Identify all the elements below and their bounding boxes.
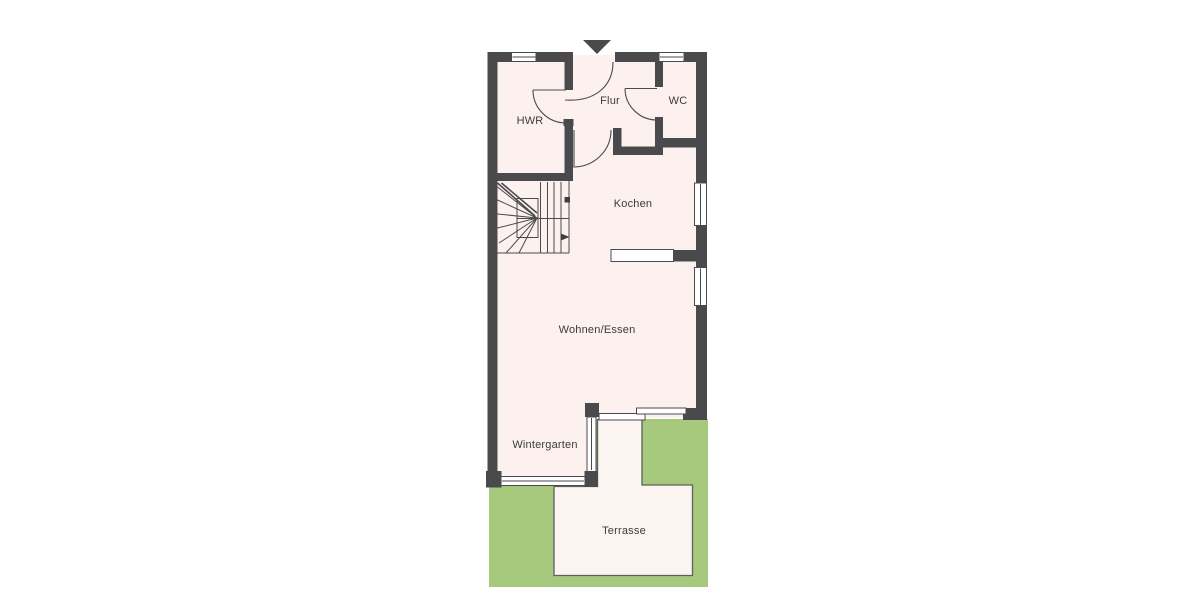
window-top-wc (659, 53, 684, 62)
window-right-living (695, 268, 707, 306)
room-label-flur: Flur (600, 95, 620, 107)
room-label-terrasse: Terrasse (602, 525, 646, 537)
entrance-arrow-icon (583, 40, 611, 54)
wintergarten-glass-right (587, 417, 596, 472)
room-label-wohnen-essen: Wohnen/Essen (559, 324, 636, 336)
window-right-kitchen (695, 183, 707, 226)
floor-plan-canvas: HWR Flur WC Kochen Wohnen/Essen Winterga… (0, 0, 1200, 600)
room-label-kochen: Kochen (614, 198, 653, 210)
room-label-wc: WC (669, 95, 688, 107)
window-top-hwr (512, 53, 537, 62)
kitchen-counter (611, 250, 674, 262)
wintergarten-glass-bottom (501, 477, 585, 486)
room-label-hwr: HWR (517, 115, 544, 127)
room-label-wintergarten: Wintergarten (512, 439, 577, 451)
main-floor (490, 55, 704, 418)
stair-start-dot (565, 197, 571, 203)
floor-plan-drawing: HWR Flur WC Kochen Wohnen/Essen Winterga… (0, 0, 1200, 600)
